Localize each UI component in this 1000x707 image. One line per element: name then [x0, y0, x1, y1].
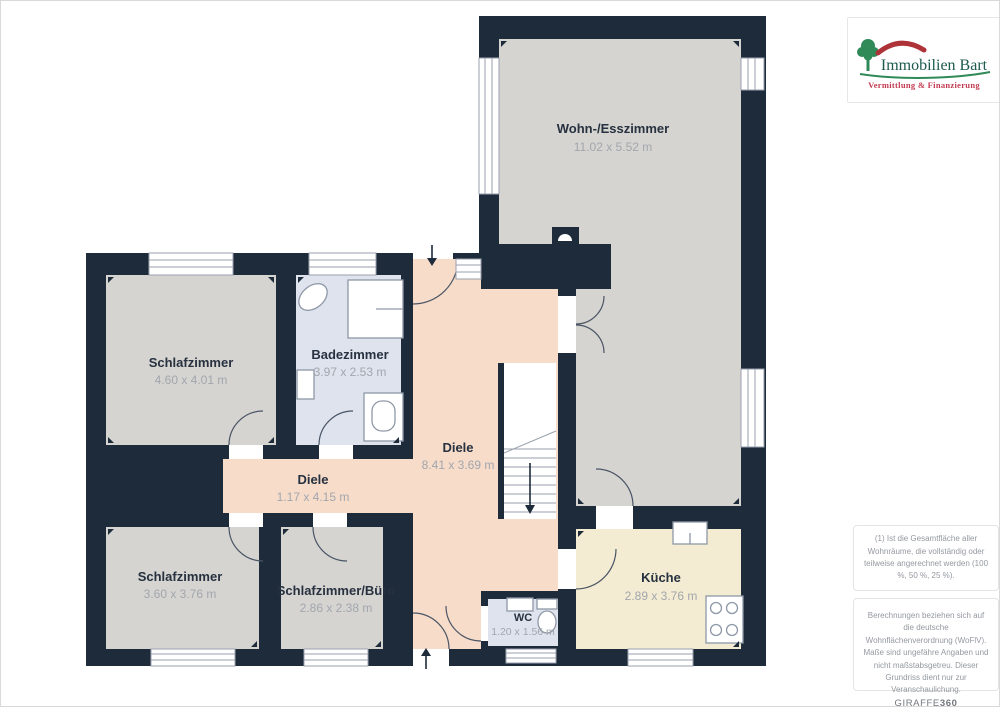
svg-text:Wohn-/Esszimmer: Wohn-/Esszimmer	[557, 121, 669, 136]
window	[149, 253, 233, 275]
disclaimer-text: Berechnungen beziehen sich auf die deuts…	[863, 610, 989, 697]
svg-text:1.17 x 4.15 m: 1.17 x 4.15 m	[277, 490, 350, 504]
svg-text:3.60 x 3.76 m: 3.60 x 3.76 m	[144, 587, 217, 601]
svg-text:8.41 x 3.69 m: 8.41 x 3.69 m	[422, 458, 495, 472]
radiator-icon	[297, 370, 314, 399]
svg-text:Schlafzimmer: Schlafzimmer	[149, 355, 234, 370]
window	[628, 649, 693, 666]
disclaimer-box: Berechnungen beziehen sich auf die deuts…	[853, 598, 999, 691]
window	[151, 649, 235, 666]
tree-icon	[857, 39, 879, 71]
svg-text:Badezimmer: Badezimmer	[311, 347, 388, 362]
area-note-box: (1) Ist die Gesamtfläche aller Wohnräume…	[853, 525, 999, 591]
stove-icon	[706, 596, 743, 643]
svg-text:Diele: Diele	[442, 440, 473, 455]
svg-text:4.60 x 4.01 m: 4.60 x 4.01 m	[155, 373, 228, 387]
svg-text:Diele: Diele	[297, 472, 328, 487]
staircase	[504, 363, 556, 519]
window	[741, 369, 764, 447]
window	[309, 253, 376, 275]
window	[479, 58, 499, 194]
roof-icon	[878, 43, 924, 53]
svg-text:Küche: Küche	[641, 570, 681, 585]
window	[741, 58, 764, 90]
svg-text:WC: WC	[514, 612, 532, 624]
giraffe360-watermark: GIRAFFE360	[863, 697, 989, 707]
floorplan-canvas: Wohn-/Esszimmer 11.02 x 5.52 m Schlafzim…	[1, 1, 1000, 707]
entry-steps	[456, 259, 481, 279]
company-tagline: Vermittlung & Finanzierung	[868, 80, 980, 90]
window	[304, 649, 368, 666]
svg-text:3.97 x 2.53 m: 3.97 x 2.53 m	[314, 365, 387, 379]
svg-text:11.02 x 5.52 m: 11.02 x 5.52 m	[574, 140, 653, 154]
area-note-text: (1) Ist die Gesamtfläche aller Wohnräume…	[863, 533, 989, 583]
toilet-icon	[364, 393, 403, 441]
svg-text:1.20 x 1.56 m: 1.20 x 1.56 m	[491, 626, 555, 638]
agency-logo: Immobilien Bart Vermittlung & Finanzieru…	[847, 17, 1000, 103]
svg-text:2.86 x 2.38 m: 2.86 x 2.38 m	[300, 601, 373, 615]
svg-text:Schlafzimmer: Schlafzimmer	[138, 569, 223, 584]
svg-text:2.89 x 3.76 m: 2.89 x 3.76 m	[625, 589, 698, 603]
svg-text:Schlafzimmer/Büro: Schlafzimmer/Büro	[277, 583, 396, 598]
floorplan-page: Wohn-/Esszimmer 11.02 x 5.52 m Schlafzim…	[0, 0, 1000, 707]
sink-icon	[507, 598, 533, 611]
agency-logo-graphic: Immobilien Bart	[854, 31, 994, 79]
company-name: Immobilien Bart	[881, 57, 988, 74]
cabinet-icon	[673, 522, 707, 544]
window	[506, 649, 556, 663]
